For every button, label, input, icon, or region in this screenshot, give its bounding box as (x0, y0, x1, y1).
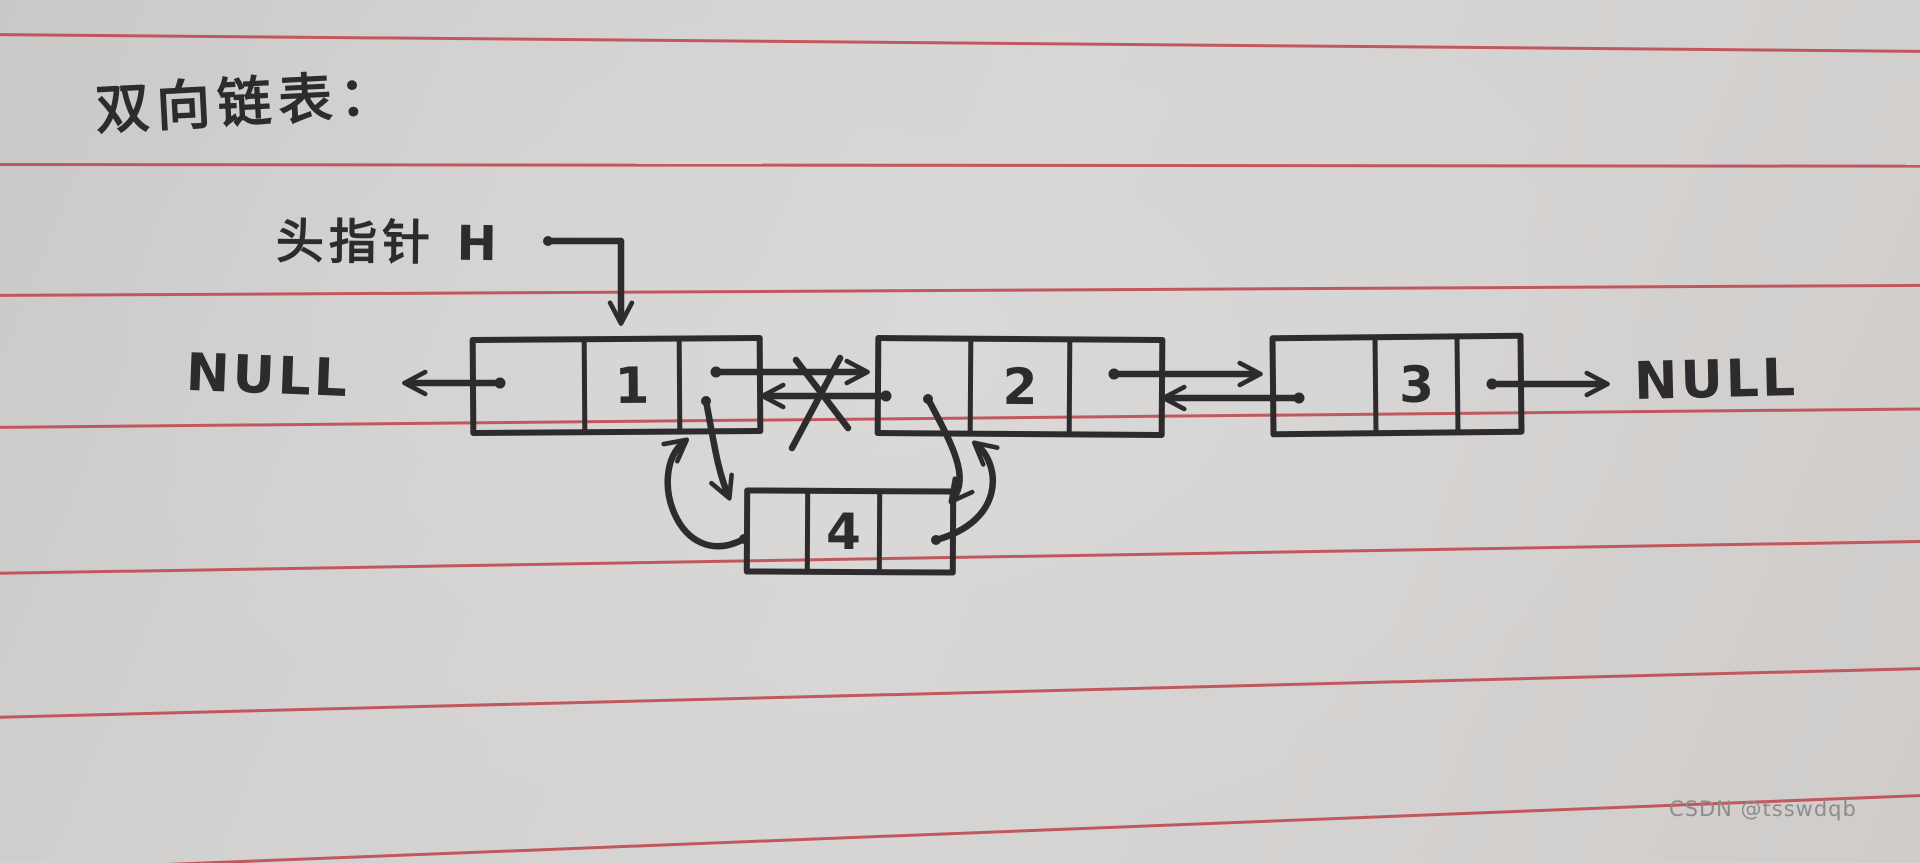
node-4-value: 4 (810, 494, 877, 569)
null-label-left: NULL (185, 343, 351, 409)
ruled-line (0, 540, 1920, 575)
list-node-1: 1 (470, 335, 764, 436)
cell-divider (1067, 339, 1073, 434)
ruled-line (0, 666, 1920, 719)
x-mark-stroke-2 (792, 358, 840, 448)
csdn-watermark: CSDN @tsswdqb (1669, 797, 1857, 821)
cell-divider (1454, 336, 1460, 432)
cell-divider (877, 491, 882, 572)
prev-arrow-node4-to-node1 (668, 442, 744, 546)
node-3-value: 3 (1378, 339, 1456, 430)
node-1-value: 1 (587, 342, 678, 430)
cell-divider (677, 339, 683, 432)
list-node-2: 2 (875, 335, 1166, 438)
node-2-value: 2 (973, 342, 1068, 432)
ruled-line (0, 793, 1920, 863)
page-title: 双向链表： (93, 50, 402, 145)
head-pointer-arrow (548, 241, 621, 320)
notebook-page: 双向链表： 头指针 H NULL NULL 1 2 3 4 (0, 0, 1920, 863)
ruled-line (0, 163, 1920, 168)
ruled-line (0, 33, 1920, 53)
list-node-3: 3 (1269, 333, 1524, 438)
pen-start-dot (543, 236, 553, 246)
null-label-right: NULL (1633, 348, 1798, 412)
list-node-4-inserted: 4 (744, 487, 956, 575)
head-pointer-label: 头指针 H (276, 202, 503, 274)
ruled-line (0, 284, 1920, 297)
